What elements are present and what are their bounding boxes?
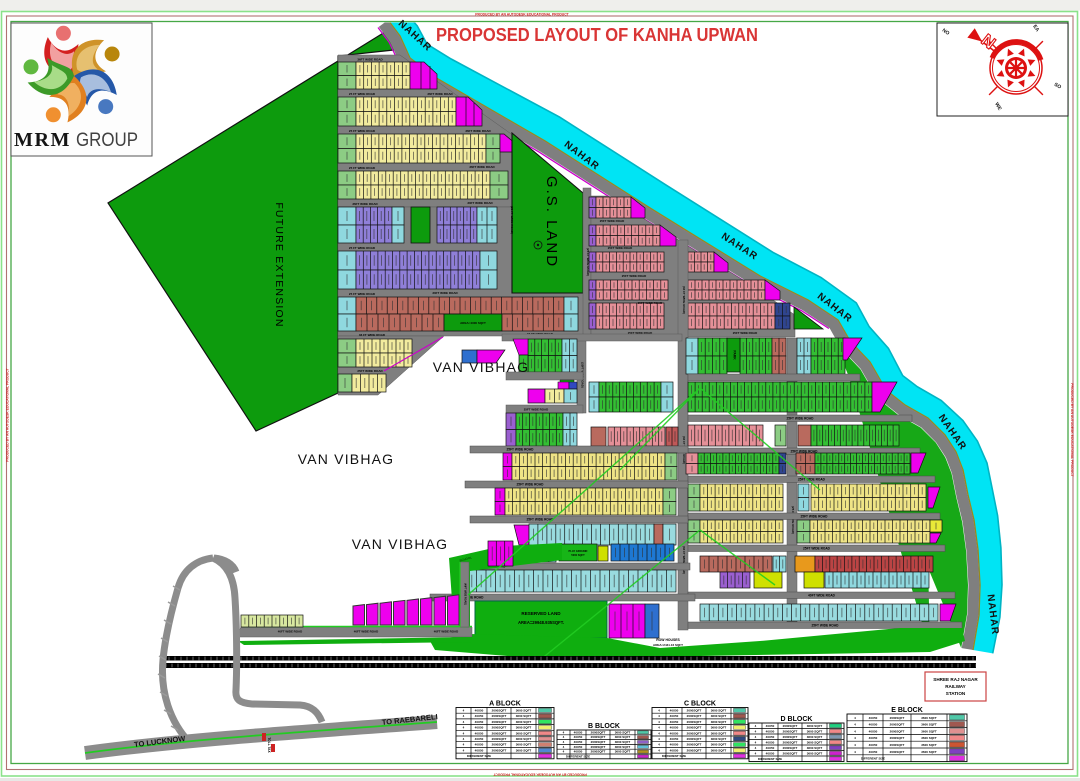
svg-text:2000SQFT: 2000SQFT xyxy=(687,709,702,713)
svg-text:40X50: 40X50 xyxy=(869,736,878,740)
svg-text:3600 SQFT: 3600 SQFT xyxy=(711,731,727,735)
svg-text:30FT WIDE ROAD: 30FT WIDE ROAD xyxy=(432,291,458,295)
svg-text:3600 SQFT: 3600 SQFT xyxy=(807,724,823,728)
svg-text:DIFFERENT SIZE: DIFFERENT SIZE xyxy=(467,754,491,758)
svg-text:25FT WIDE ROAD: 25FT WIDE ROAD xyxy=(608,246,632,250)
svg-text:3600 SQFT: 3600 SQFT xyxy=(807,735,823,739)
svg-text:2000SQFT: 2000SQFT xyxy=(492,748,507,752)
svg-text:25FT WIDE ROAD: 25FT WIDE ROAD xyxy=(787,416,815,420)
svg-text:36FT WIDE ROAD: 36FT WIDE ROAD xyxy=(427,92,453,96)
svg-text:40X50: 40X50 xyxy=(670,709,679,713)
svg-text:40X50: 40X50 xyxy=(475,709,484,713)
svg-text:SHREE RAJ NAGAR: SHREE RAJ NAGAR xyxy=(933,677,978,682)
svg-text:40FT WIDE ROAD: 40FT WIDE ROAD xyxy=(354,630,378,634)
svg-text:DIFFERENT SIZE: DIFFERENT SIZE xyxy=(662,754,686,758)
svg-text:3600 SQFT: 3600 SQFT xyxy=(711,726,727,730)
svg-text:3600 SQFT: 3600 SQFT xyxy=(807,729,823,733)
svg-text:25 FT WIDE ROAD: 25 FT WIDE ROAD xyxy=(349,246,376,250)
svg-text:RAILWAY: RAILWAY xyxy=(945,684,966,689)
svg-text:40X50: 40X50 xyxy=(670,731,679,735)
svg-text:3600 SQFT: 3600 SQFT xyxy=(711,743,727,747)
svg-text:2000SQFT: 2000SQFT xyxy=(687,714,702,718)
svg-text:D BLOCK: D BLOCK xyxy=(781,716,813,723)
svg-text:2000SQFT: 2000SQFT xyxy=(687,743,702,747)
svg-text:FUTURE EXTENSION: FUTURE EXTENSION xyxy=(273,202,285,327)
svg-text:2000SQFT: 2000SQFT xyxy=(492,731,507,735)
svg-text:C BLOCK: C BLOCK xyxy=(684,701,716,708)
svg-text:2000SQFT: 2000SQFT xyxy=(890,736,905,740)
svg-text:2000SQFT: 2000SQFT xyxy=(890,723,905,727)
svg-text:DIFFERENT SIZE: DIFFERENT SIZE xyxy=(861,757,885,761)
svg-text:2000SQFT: 2000SQFT xyxy=(492,720,507,724)
svg-text:3600 SQFT: 3600 SQFT xyxy=(615,750,631,754)
svg-text:25 FT WIDE ROAD: 25 FT WIDE ROAD xyxy=(349,166,376,170)
svg-text:40X50: 40X50 xyxy=(766,751,775,755)
svg-text:3600 SQFT: 3600 SQFT xyxy=(711,720,727,724)
svg-text:3600 SQFT: 3600 SQFT xyxy=(921,736,937,740)
svg-text:3600 SQFT: 3600 SQFT xyxy=(711,748,727,752)
svg-text:40X50: 40X50 xyxy=(574,740,583,744)
svg-text:2000SQFT: 2000SQFT xyxy=(687,726,702,730)
svg-text:2000SQFT: 2000SQFT xyxy=(890,750,905,754)
svg-text:RESERVED LAND: RESERVED LAND xyxy=(521,611,561,616)
svg-text:40X50: 40X50 xyxy=(475,714,484,718)
svg-text:40X50: 40X50 xyxy=(766,740,775,744)
svg-text:3600 SQFT: 3600 SQFT xyxy=(615,730,631,734)
svg-text:25FT WIDE ROAD: 25FT WIDE ROAD xyxy=(798,477,826,481)
svg-text:(25 FT WIDE ROAD): (25 FT WIDE ROAD) xyxy=(791,506,795,534)
svg-text:25 FT WIDE ROAD: 25 FT WIDE ROAD xyxy=(349,92,376,96)
svg-text:40X50: 40X50 xyxy=(475,720,484,724)
svg-text:2000SQFT: 2000SQFT xyxy=(492,743,507,747)
svg-text:25 FT WIDE ROAD: 25 FT WIDE ROAD xyxy=(349,292,376,296)
svg-text:2000SQFT: 2000SQFT xyxy=(890,729,905,733)
svg-text:AREA=4300 SQFT: AREA=4300 SQFT xyxy=(460,321,486,325)
svg-text:2000SQFT: 2000SQFT xyxy=(783,735,798,739)
svg-text:25FT WIDE ROAD: 25FT WIDE ROAD xyxy=(801,515,829,519)
svg-text:PLAY GROUND: PLAY GROUND xyxy=(569,549,588,553)
svg-text:36FT WIDE ROAD: 36FT WIDE ROAD xyxy=(465,129,491,133)
svg-text:2000SQFT: 2000SQFT xyxy=(492,737,507,741)
svg-text:40X50: 40X50 xyxy=(869,729,878,733)
svg-text:40X50: 40X50 xyxy=(670,720,679,724)
svg-text:VAN VIBHAG: VAN VIBHAG xyxy=(433,359,530,375)
svg-text:25FT WIDE ROAD: 25FT WIDE ROAD xyxy=(622,274,646,278)
svg-text:36 FT WIDE ROAD: 36 FT WIDE ROAD xyxy=(359,333,386,337)
svg-text:40X50: 40X50 xyxy=(475,726,484,730)
svg-text:40X50: 40X50 xyxy=(670,737,679,741)
svg-text:PRODUCED BY AN AUTODESK EDUCAT: PRODUCED BY AN AUTODESK EDUCATIONAL PROD… xyxy=(492,773,586,777)
svg-text:40X50: 40X50 xyxy=(574,745,583,749)
svg-text:25FT WIDE ROAD: 25FT WIDE ROAD xyxy=(507,448,535,452)
svg-text:25 FT WIDE ROAD: 25 FT WIDE ROAD xyxy=(349,129,376,133)
svg-text:40X50: 40X50 xyxy=(766,729,775,733)
svg-text:3600 SQFT: 3600 SQFT xyxy=(516,720,532,724)
svg-text:3600 SQFT: 3600 SQFT xyxy=(615,745,631,749)
svg-text:AREA=29948.935SQFT.: AREA=29948.935SQFT. xyxy=(518,620,564,625)
svg-text:(25 FT WIDE ROAD): (25 FT WIDE ROAD) xyxy=(510,206,514,234)
svg-text:3600 SQFT: 3600 SQFT xyxy=(921,723,937,727)
svg-text:3600 SQFT: 3600 SQFT xyxy=(711,709,727,713)
svg-text:A BLOCK: A BLOCK xyxy=(489,701,521,708)
svg-text:2000SQFT: 2000SQFT xyxy=(591,745,606,749)
svg-text:STATION: STATION xyxy=(946,691,966,696)
svg-text:25FT WIDE ROAD: 25FT WIDE ROAD xyxy=(524,408,548,412)
svg-text:25FT WIDE ROAD: 25FT WIDE ROAD xyxy=(517,483,545,487)
svg-text:VAN VIBHAG: VAN VIBHAG xyxy=(352,536,449,552)
svg-text:40X50: 40X50 xyxy=(766,735,775,739)
svg-text:PRODUCED BY AN AUTODESK EDUCAT: PRODUCED BY AN AUTODESK EDUCATIONAL PROD… xyxy=(1070,383,1074,477)
svg-text:40X50: 40X50 xyxy=(475,748,484,752)
svg-text:40X50: 40X50 xyxy=(766,724,775,728)
svg-text:2000SQFT: 2000SQFT xyxy=(783,751,798,755)
svg-text:2000SQFT: 2000SQFT xyxy=(591,740,606,744)
svg-text:40X50: 40X50 xyxy=(475,737,484,741)
svg-text:(40FT WIDE ROAD): (40FT WIDE ROAD) xyxy=(463,583,466,605)
svg-text:3600 SQFT: 3600 SQFT xyxy=(807,740,823,744)
svg-text:3600 SQFT: 3600 SQFT xyxy=(921,729,937,733)
svg-text:2000SQFT: 2000SQFT xyxy=(492,709,507,713)
svg-text:40X50: 40X50 xyxy=(869,723,878,727)
svg-text:TOLL TAX: TOLL TAX xyxy=(267,737,271,753)
svg-text:2000SQFT: 2000SQFT xyxy=(890,743,905,747)
svg-text:40X50: 40X50 xyxy=(869,743,878,747)
svg-text:2000SQFT: 2000SQFT xyxy=(591,735,606,739)
svg-text:3600 SQFT: 3600 SQFT xyxy=(921,716,937,720)
svg-text:40X50: 40X50 xyxy=(670,726,679,730)
svg-text:30FT WIDE ROAD: 30FT WIDE ROAD xyxy=(467,201,493,205)
svg-text:GROUP: GROUP xyxy=(76,129,138,151)
svg-text:PROPOSED LAYOUT OF KANHA UPWAN: PROPOSED LAYOUT OF KANHA UPWAN xyxy=(436,24,758,45)
svg-text:E BLOCK: E BLOCK xyxy=(891,707,923,714)
svg-text:36FT WIDE ROAD: 36FT WIDE ROAD xyxy=(469,165,495,169)
svg-text:3600 SQFT: 3600 SQFT xyxy=(516,737,532,741)
svg-text:2000SQFT: 2000SQFT xyxy=(687,737,702,741)
svg-text:DIFFERENT SIZE: DIFFERENT SIZE xyxy=(566,754,590,758)
svg-text:40X50: 40X50 xyxy=(869,750,878,754)
svg-text:2000SQFT: 2000SQFT xyxy=(687,748,702,752)
svg-text:PRODUCED BY AN AUTODESK EDUCAT: PRODUCED BY AN AUTODESK EDUCATIONAL PROD… xyxy=(475,12,569,16)
svg-text:40X50: 40X50 xyxy=(670,714,679,718)
svg-text:3600 SQFT: 3600 SQFT xyxy=(807,746,823,750)
svg-text:40X50: 40X50 xyxy=(574,750,583,754)
svg-text:B BLOCK: B BLOCK xyxy=(588,723,620,730)
svg-text:2000SQFT: 2000SQFT xyxy=(783,740,798,744)
svg-text:40FT WIDE ROAD: 40FT WIDE ROAD xyxy=(278,630,302,634)
svg-text:ROW HOUSES: ROW HOUSES xyxy=(656,638,680,642)
svg-text:40X50: 40X50 xyxy=(574,735,583,739)
svg-text:40X50: 40X50 xyxy=(766,746,775,750)
svg-text:3600 SQFT: 3600 SQFT xyxy=(711,714,727,718)
svg-text:AREA=2441.16 SQFT: AREA=2441.16 SQFT xyxy=(653,643,683,647)
svg-text:5000 SQFT: 5000 SQFT xyxy=(571,553,585,557)
svg-text:MRM: MRM xyxy=(14,129,71,151)
svg-text:25FT WIDE ROAD: 25FT WIDE ROAD xyxy=(733,331,757,335)
svg-text:36FT WIDE ROAD: 36FT WIDE ROAD xyxy=(352,202,378,206)
svg-text:40FT WIDE ROAD: 40FT WIDE ROAD xyxy=(434,630,458,634)
svg-text:3600 SQFT: 3600 SQFT xyxy=(516,743,532,747)
svg-text:3600 SQFT: 3600 SQFT xyxy=(615,735,631,739)
svg-text:(30 FT WIDE ROAD): (30 FT WIDE ROAD) xyxy=(682,286,686,314)
svg-text:40FT WIDE ROAD: 40FT WIDE ROAD xyxy=(808,594,836,598)
svg-text:25FT WIDE ROAD: 25FT WIDE ROAD xyxy=(812,624,840,628)
svg-text:40X50: 40X50 xyxy=(574,730,583,734)
svg-text:3600 SQFT: 3600 SQFT xyxy=(921,750,937,754)
svg-text:2000SQFT: 2000SQFT xyxy=(492,714,507,718)
svg-text:PRODUCED BY AN AUTODESK EDUCAT: PRODUCED BY AN AUTODESK EDUCATIONAL PROD… xyxy=(6,367,10,461)
svg-text:25FT WIDE ROAD: 25FT WIDE ROAD xyxy=(357,369,383,373)
svg-text:36FT WIDE ROAD: 36FT WIDE ROAD xyxy=(357,58,383,62)
svg-text:2000SQFT: 2000SQFT xyxy=(591,730,606,734)
svg-text:3600 SQFT: 3600 SQFT xyxy=(711,737,727,741)
svg-text:25FT WIDE ROAD: 25FT WIDE ROAD xyxy=(638,301,662,305)
svg-text:2000SQFT: 2000SQFT xyxy=(492,726,507,730)
svg-text:PARK: PARK xyxy=(733,350,737,360)
svg-text:3600 SQFT: 3600 SQFT xyxy=(921,743,937,747)
svg-text:3600 SQFT: 3600 SQFT xyxy=(615,740,631,744)
svg-text:VAN VIBHAG: VAN VIBHAG xyxy=(298,451,395,467)
svg-text:40X50: 40X50 xyxy=(670,743,679,747)
svg-text:3600 SQFT: 3600 SQFT xyxy=(807,751,823,755)
svg-text:2000SQFT: 2000SQFT xyxy=(783,746,798,750)
svg-text:G.S. LAND: G.S. LAND xyxy=(543,176,560,268)
svg-text:40X50: 40X50 xyxy=(475,731,484,735)
svg-text:3600 SQFT: 3600 SQFT xyxy=(516,731,532,735)
svg-text:3600 SQFT: 3600 SQFT xyxy=(516,709,532,713)
svg-text:40X50: 40X50 xyxy=(475,743,484,747)
svg-text:2000SQFT: 2000SQFT xyxy=(591,750,606,754)
svg-text:3600 SQFT: 3600 SQFT xyxy=(516,714,532,718)
svg-text:DIFFERENT SIZE: DIFFERENT SIZE xyxy=(758,757,782,761)
svg-text:3600 SQFT: 3600 SQFT xyxy=(516,726,532,730)
svg-text:3600 SQFT: 3600 SQFT xyxy=(516,748,532,752)
svg-text:40X50: 40X50 xyxy=(869,716,878,720)
svg-text:25FT WIDE ROAD: 25FT WIDE ROAD xyxy=(600,219,624,223)
svg-text:2000SQFT: 2000SQFT xyxy=(783,729,798,733)
svg-text:40X50: 40X50 xyxy=(670,748,679,752)
svg-text:2000SQFT: 2000SQFT xyxy=(687,720,702,724)
svg-text:2000SQFT: 2000SQFT xyxy=(890,716,905,720)
svg-text:2000SQFT: 2000SQFT xyxy=(783,724,798,728)
svg-text:2000SQFT: 2000SQFT xyxy=(687,731,702,735)
svg-text:25FT WIDE ROAD: 25FT WIDE ROAD xyxy=(803,547,831,551)
